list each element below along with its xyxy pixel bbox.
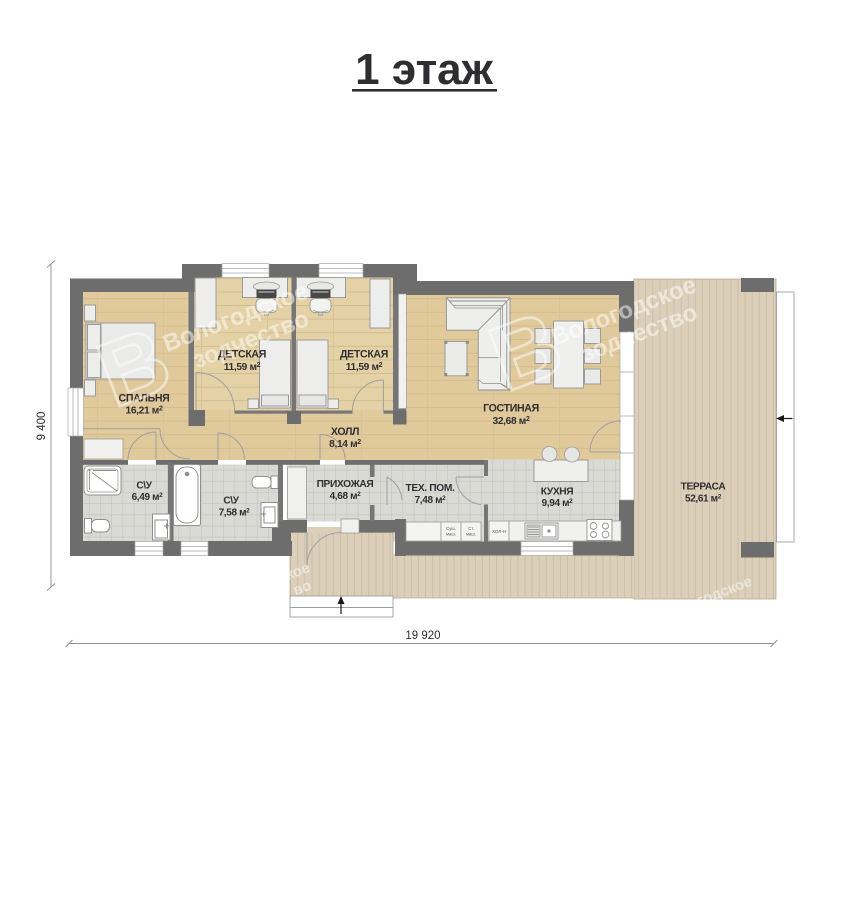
svg-text:32,68 м2: 32,68 м2 [493,416,530,427]
svg-text:8,14 м2: 8,14 м2 [329,439,361,450]
svg-text:ХОЛ-Н: ХОЛ-Н [492,529,506,534]
svg-text:С\У: С\У [136,481,152,492]
svg-text:ПРИХОЖАЯ: ПРИХОЖАЯ [317,479,374,490]
svg-text:11,59 м2: 11,59 м2 [224,362,261,373]
svg-text:11,59 м2: 11,59 м2 [346,362,383,373]
svg-text:6,49 м2: 6,49 м2 [132,492,164,503]
svg-text:7,48 м2: 7,48 м2 [415,495,447,506]
svg-text:1 этаж: 1 этаж [355,45,493,94]
svg-text:Суш.: Суш. [446,526,456,531]
svg-text:С\У: С\У [223,496,239,507]
svg-text:ХОЛЛ: ХОЛЛ [331,426,359,438]
svg-text:Ст.: Ст. [468,526,474,531]
svg-text:7,58 м2: 7,58 м2 [219,508,251,519]
svg-text:ТЕХ. ПОМ.: ТЕХ. ПОМ. [406,483,455,494]
svg-text:52,61 м2: 52,61 м2 [685,494,722,505]
svg-text:маш.: маш. [446,532,456,537]
svg-text:9,94 м2: 9,94 м2 [542,498,574,509]
svg-text:19 920: 19 920 [405,630,440,642]
svg-text:ТЕРРАСА: ТЕРРАСА [681,482,727,493]
svg-text:ДЕТСКАЯ: ДЕТСКАЯ [340,349,388,361]
svg-text:КУХНЯ: КУХНЯ [541,487,574,498]
svg-text:маш.: маш. [466,532,476,537]
svg-text:9 400: 9 400 [36,412,48,441]
svg-text:4,68 м2: 4,68 м2 [330,491,362,502]
